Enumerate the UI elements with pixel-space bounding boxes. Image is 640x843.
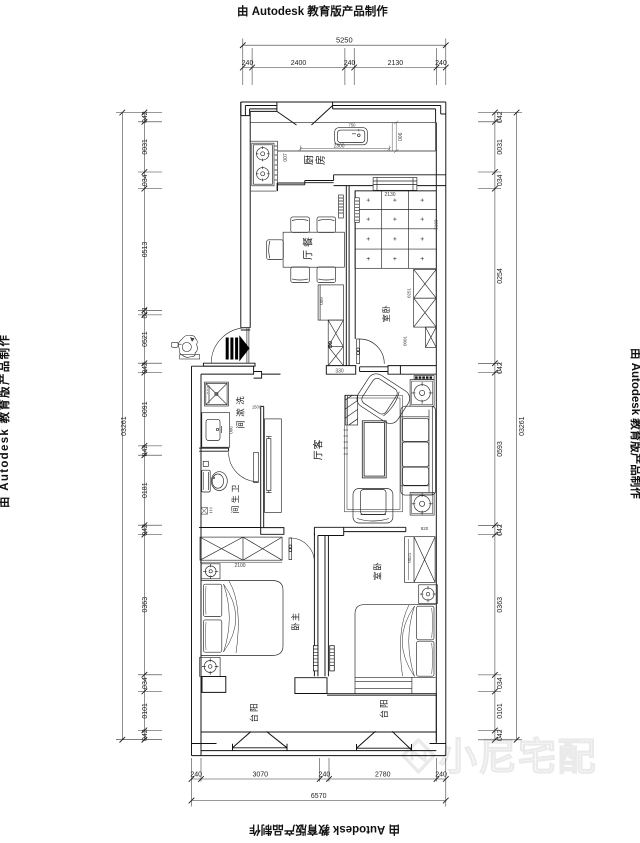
- svg-text:0031: 0031: [497, 139, 504, 155]
- svg-text:240: 240: [190, 772, 202, 779]
- svg-text:2130: 2130: [384, 192, 395, 198]
- svg-text:0001: 0001: [403, 335, 408, 346]
- svg-text:042: 042: [142, 445, 149, 457]
- svg-text:042: 042: [497, 111, 504, 123]
- svg-text:042: 042: [142, 111, 149, 123]
- svg-text:240: 240: [435, 60, 447, 67]
- svg-text:2400: 2400: [291, 60, 307, 67]
- svg-text:由 Autodesk 教育版产品制作: 由 Autodesk 教育版产品制作: [0, 334, 11, 508]
- svg-text:042: 042: [497, 362, 504, 374]
- svg-text:03261: 03261: [121, 416, 128, 436]
- svg-text:03261: 03261: [519, 416, 526, 436]
- svg-text:240: 240: [435, 772, 447, 779]
- svg-text:0251: 0251: [407, 287, 412, 298]
- svg-text:间漱洗: 间漱洗: [235, 393, 245, 429]
- svg-text:042: 042: [142, 729, 149, 741]
- svg-text:室卧: 室卧: [372, 561, 382, 580]
- svg-text:6570: 6570: [311, 793, 327, 800]
- svg-text:台阳: 台阳: [249, 701, 259, 722]
- svg-text:009: 009: [319, 297, 324, 305]
- svg-text:由 Autodesk 教育版产品制作: 由 Autodesk 教育版产品制作: [237, 4, 388, 18]
- svg-text:由 Autodesk 教育版产品制作: 由 Autodesk 教育版产品制作: [629, 348, 640, 499]
- svg-text:0031: 0031: [142, 139, 149, 155]
- svg-text:厅餐: 厅餐: [302, 234, 315, 260]
- svg-text:0513: 0513: [142, 242, 149, 258]
- svg-text:1500: 1500: [252, 405, 262, 410]
- svg-text:2100: 2100: [234, 563, 245, 569]
- svg-text:由 Autodesk 教育版产品制作: 由 Autodesk 教育版产品制作: [249, 823, 400, 837]
- svg-text:0254: 0254: [497, 268, 504, 284]
- svg-text:021: 021: [142, 307, 149, 319]
- svg-text:厅客: 厅客: [312, 439, 325, 461]
- svg-text:042: 042: [142, 362, 149, 374]
- svg-text:042: 042: [497, 524, 504, 536]
- svg-text:820: 820: [421, 526, 429, 531]
- svg-text:间生卫: 间生卫: [230, 482, 240, 514]
- svg-text:0521: 0521: [142, 331, 149, 347]
- svg-text:034: 034: [142, 677, 149, 689]
- svg-text:0363: 0363: [142, 597, 149, 613]
- svg-text:007: 007: [283, 153, 289, 162]
- svg-text:卧主: 卧主: [290, 612, 300, 631]
- svg-text:0101: 0101: [142, 703, 149, 719]
- svg-text:台阳: 台阳: [379, 697, 389, 718]
- svg-text:006: 006: [398, 132, 404, 141]
- svg-text:小尼宅配: 小尼宅配: [439, 736, 597, 779]
- svg-text:房: 房: [314, 155, 327, 165]
- svg-text:0593: 0593: [497, 441, 504, 457]
- svg-text:2130: 2130: [388, 60, 404, 67]
- svg-text:0021: 0021: [407, 552, 412, 563]
- svg-text:0101: 0101: [497, 703, 504, 719]
- svg-text:室卧: 室卧: [381, 304, 391, 322]
- svg-text:3070: 3070: [253, 772, 269, 779]
- svg-text:0363: 0363: [497, 597, 504, 613]
- svg-text:2300: 2300: [333, 143, 344, 149]
- svg-text:042: 042: [497, 729, 504, 741]
- svg-text:034: 034: [497, 174, 504, 186]
- svg-text:330: 330: [335, 369, 344, 375]
- svg-text:240: 240: [344, 60, 356, 67]
- svg-text:006: 006: [229, 426, 234, 434]
- svg-text:240: 240: [242, 60, 254, 67]
- svg-text:厨: 厨: [304, 155, 316, 165]
- svg-text:0091: 0091: [142, 401, 149, 417]
- svg-text:750: 750: [349, 122, 357, 127]
- svg-text:2780: 2780: [375, 772, 391, 779]
- svg-text:034: 034: [497, 677, 504, 689]
- svg-text:240: 240: [319, 772, 331, 779]
- svg-text:034: 034: [142, 174, 149, 186]
- svg-text:5103: 5103: [433, 219, 438, 230]
- svg-text:5250: 5250: [336, 36, 353, 45]
- svg-text:042: 042: [142, 524, 149, 536]
- svg-text:0181: 0181: [142, 482, 149, 498]
